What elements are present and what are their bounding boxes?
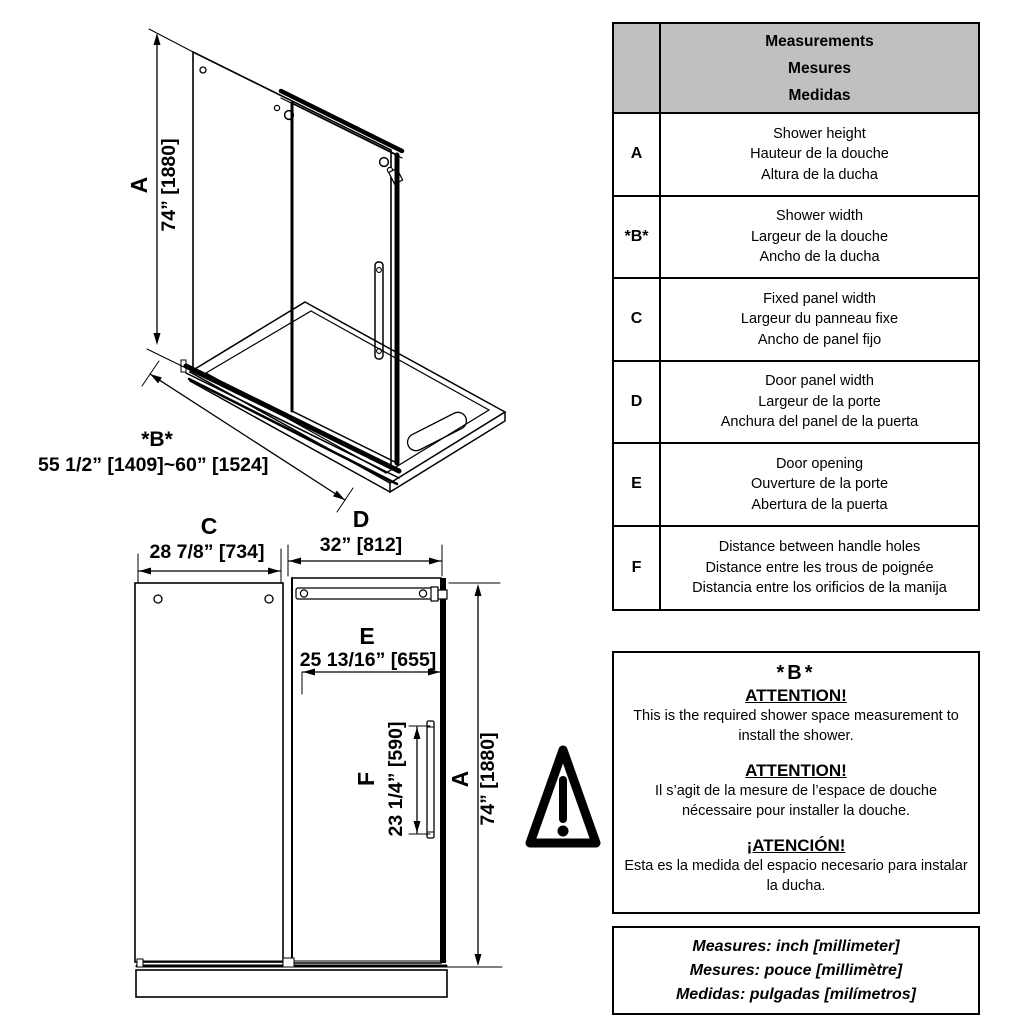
panel-hole (200, 67, 206, 73)
attention-heading-fr: ATTENTION! (745, 761, 847, 781)
row-key: *B* (614, 197, 661, 278)
door-handle-front (427, 721, 434, 838)
dim-b-letter: *B* (141, 428, 173, 451)
row-description: Door opening Ouverture de la porte Abert… (661, 444, 978, 525)
dim-c-letter: C (201, 513, 218, 539)
tray-right-face (390, 412, 505, 492)
units-box: Measures: inch [millimeter] Mesures: pou… (612, 926, 980, 1015)
measurements-table: Measurements Mesures Medidas A Shower he… (612, 22, 980, 611)
dim-b-value: 55 1/2” [1409]~60” [1524] (38, 454, 268, 476)
row-line-fr: Distance entre les trous de poignée (705, 558, 933, 579)
row-key: F (614, 527, 661, 610)
row-key: C (614, 279, 661, 360)
top-rail (281, 91, 402, 151)
row-line-fr: Ouverture de la porte (751, 474, 888, 495)
dim-d-value: 32” [812] (320, 534, 402, 556)
row-line-es: Altura de la ducha (761, 165, 878, 186)
base-front (136, 970, 447, 997)
row-key: E (614, 444, 661, 525)
row-description: Shower height Hauteur de la douche Altur… (661, 114, 978, 195)
row-line-en: Door opening (776, 454, 863, 475)
front-view: C 28 7/8” [734] D 32” [812] E 25 13 (135, 506, 502, 997)
panel-hole (154, 595, 162, 603)
fixed-panel-front (135, 583, 283, 962)
technical-drawing: A 74” [1880] *B* 55 1/2” [1409]~60” [152… (0, 0, 640, 1024)
table-header-line: Mesures (788, 55, 851, 82)
row-line-fr: Hauteur de la douche (750, 144, 889, 165)
row-key: A (614, 114, 661, 195)
table-row-a: A Shower height Hauteur de la douche Alt… (614, 114, 978, 197)
table-row-f: F Distance between handle holes Distance… (614, 527, 978, 610)
row-line-fr: Largeur du panneau fixe (741, 309, 898, 330)
roller-bar-front (296, 587, 447, 601)
shower-spec-sheet: A 74” [1880] *B* 55 1/2” [1409]~60” [152… (0, 0, 1024, 1024)
row-description: Fixed panel width Largeur du panneau fix… (661, 279, 978, 360)
attention-title: *B* (776, 662, 815, 685)
attention-body-es: Esta es la medida del espacio necesario … (621, 856, 971, 896)
table-row-b: *B* Shower width Largeur de la douche An… (614, 197, 978, 280)
table-header-line: Medidas (788, 82, 850, 109)
tray-drain-recess (405, 409, 470, 453)
dimension-c: C 28 7/8” [734] (138, 513, 281, 582)
roller-icon (274, 105, 279, 110)
row-description: Door panel width Largeur de la porte Anc… (661, 362, 978, 443)
row-line-en: Door panel width (765, 371, 874, 392)
handle-mount (377, 268, 382, 273)
dim-a-letter: A (126, 177, 152, 194)
table-header-line: Measurements (765, 28, 874, 55)
door-right-profile (440, 578, 446, 963)
dim-f-value: 23 1/4” [590] (385, 722, 407, 837)
table-header-cell: Measurements Mesures Medidas (661, 24, 978, 112)
attention-box: *B* ATTENTION! This is the required show… (612, 651, 980, 914)
attention-body-en: This is the required shower space measur… (621, 706, 971, 746)
row-line-es: Distancia entre los orificios de la mani… (692, 578, 947, 599)
dim-a-value: 74” [1880] (158, 138, 180, 231)
dimension-a-perspective: A 74” [1880] (126, 29, 195, 371)
dim-a-value: 74” [1880] (477, 732, 499, 825)
row-description: Shower width Largeur de la douche Ancho … (661, 197, 978, 278)
dim-f-letter: F (353, 772, 379, 786)
dim-c-value: 28 7/8” [734] (150, 541, 265, 563)
perspective-view: A 74” [1880] *B* 55 1/2” [1409]~60” [152… (38, 29, 505, 512)
row-line-es: Abertura de la puerta (751, 495, 887, 516)
attention-heading-en: ATTENTION! (745, 686, 847, 706)
row-line-en: Shower width (776, 206, 863, 227)
row-description: Distance between handle holes Distance e… (661, 527, 978, 610)
dim-d-letter: D (353, 506, 370, 532)
table-corner-cell (614, 24, 661, 112)
row-line-es: Ancho de la ducha (759, 247, 879, 268)
attention-heading-es: ¡ATENCIÓN! (747, 836, 846, 856)
table-header-row: Measurements Mesures Medidas (614, 24, 978, 114)
dimension-a-front: A 74” [1880] (446, 583, 502, 967)
row-line-fr: Largeur de la douche (751, 227, 888, 248)
row-line-en: Shower height (773, 124, 866, 145)
dim-e-value: 25 13/16” [655] (300, 649, 437, 671)
dimension-e: E 25 13/16” [655] (300, 623, 440, 694)
row-line-en: Distance between handle holes (719, 537, 921, 558)
table-row-c: C Fixed panel width Largeur du panneau f… (614, 279, 978, 362)
warning-triangle-icon (530, 750, 596, 843)
dimension-f: F 23 1/4” [590] (353, 722, 430, 837)
dimension-d: D 32” [812] (288, 506, 442, 576)
rail-bracket (438, 590, 447, 599)
row-line-es: Anchura del panel de la puerta (721, 412, 919, 433)
rail-bracket (431, 587, 438, 601)
roller-icon (380, 158, 389, 167)
row-key: D (614, 362, 661, 443)
table-row-d: D Door panel width Largeur de la porte A… (614, 362, 978, 445)
table-row-e: E Door opening Ouverture de la porte Abe… (614, 444, 978, 527)
dim-e-letter: E (359, 623, 374, 649)
units-line-es: Medidas: pulgadas [milímetros] (676, 983, 916, 1007)
dim-a-letter: A (447, 771, 473, 788)
panel-hole (265, 595, 273, 603)
attention-body-fr: Il s’agit de la mesure de l’espace de do… (621, 781, 971, 821)
roller-icon (300, 590, 307, 597)
row-line-fr: Largeur de la porte (758, 392, 881, 413)
units-line-fr: Mesures: pouce [millimètre] (690, 959, 903, 983)
row-line-es: Ancho de panel fijo (758, 330, 881, 351)
units-line-en: Measures: inch [millimeter] (692, 935, 899, 959)
roller-icon (419, 590, 426, 597)
row-line-en: Fixed panel width (763, 289, 876, 310)
